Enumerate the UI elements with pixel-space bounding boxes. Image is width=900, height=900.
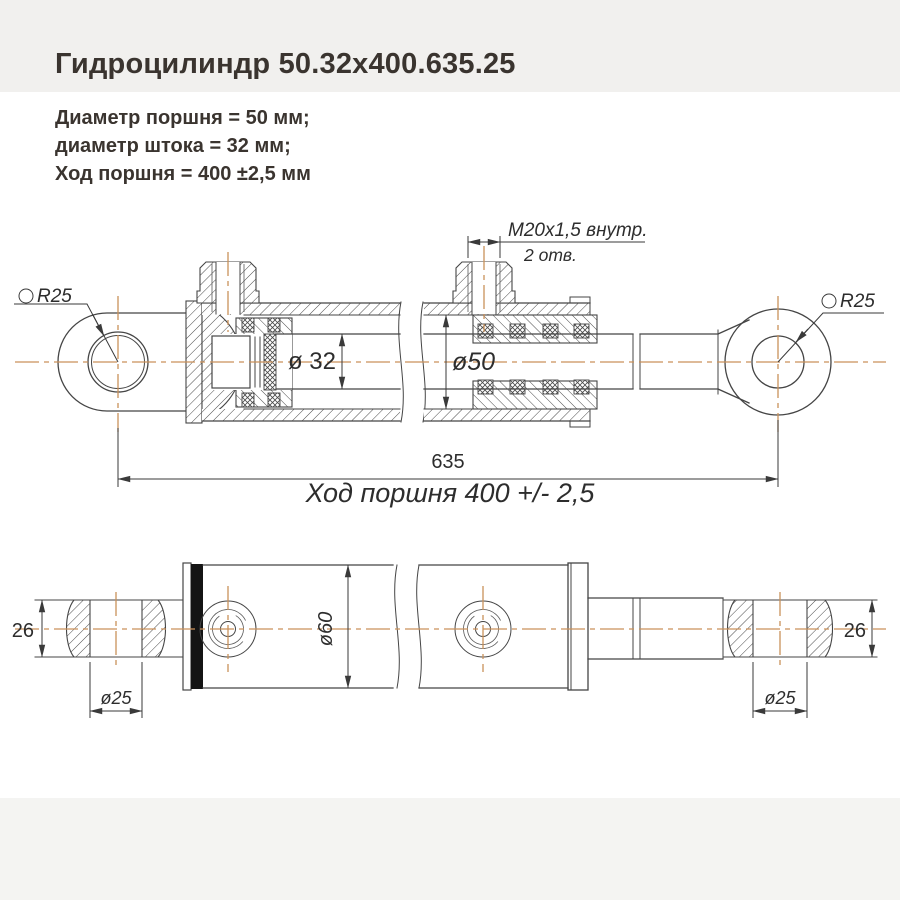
technical-drawing-svg: M20x1,5 внутр. 2 отв. ø 32 ø50 R25 R25 6… [0, 0, 900, 900]
bore-diameter-label: ø50 [452, 348, 495, 376]
piston-seal [242, 393, 254, 407]
eye-hole-label-left: ø25 [100, 688, 132, 708]
tube-diameter-label: ø60 [315, 612, 337, 646]
rod-diameter-label: ø 32 [288, 348, 336, 375]
sphere-symbol-icon [19, 289, 33, 303]
port-count-label: 2 отв. [523, 245, 577, 265]
end-cap-band [191, 564, 203, 689]
head-and-rod-bottom [568, 563, 723, 690]
bottom-view [35, 563, 877, 690]
overall-length-label: 635 [431, 451, 464, 473]
piston-seal [242, 318, 254, 332]
drawing-page: Гидроцилиндр 50.32х400.635.25 Диаметр по… [0, 0, 900, 900]
eye-radius-label-left: R25 [37, 286, 72, 307]
eye-hole-label-right: ø25 [764, 688, 796, 708]
piston-seal [268, 318, 280, 332]
eye-radius-label-right: R25 [840, 291, 875, 312]
top-view-section [58, 262, 831, 427]
rear-flange-bottom [183, 563, 191, 690]
port-thread-label: M20x1,5 внутр. [508, 220, 648, 241]
tube-bottom-view [203, 565, 568, 688]
sphere-symbol-icon [822, 294, 836, 308]
piston-seal [268, 393, 280, 407]
eye-width-label-right: 26 [844, 620, 866, 642]
eye-width-label-left: 26 [12, 620, 34, 642]
stroke-caption: Ход поршня 400 +/- 2,5 [305, 478, 596, 508]
